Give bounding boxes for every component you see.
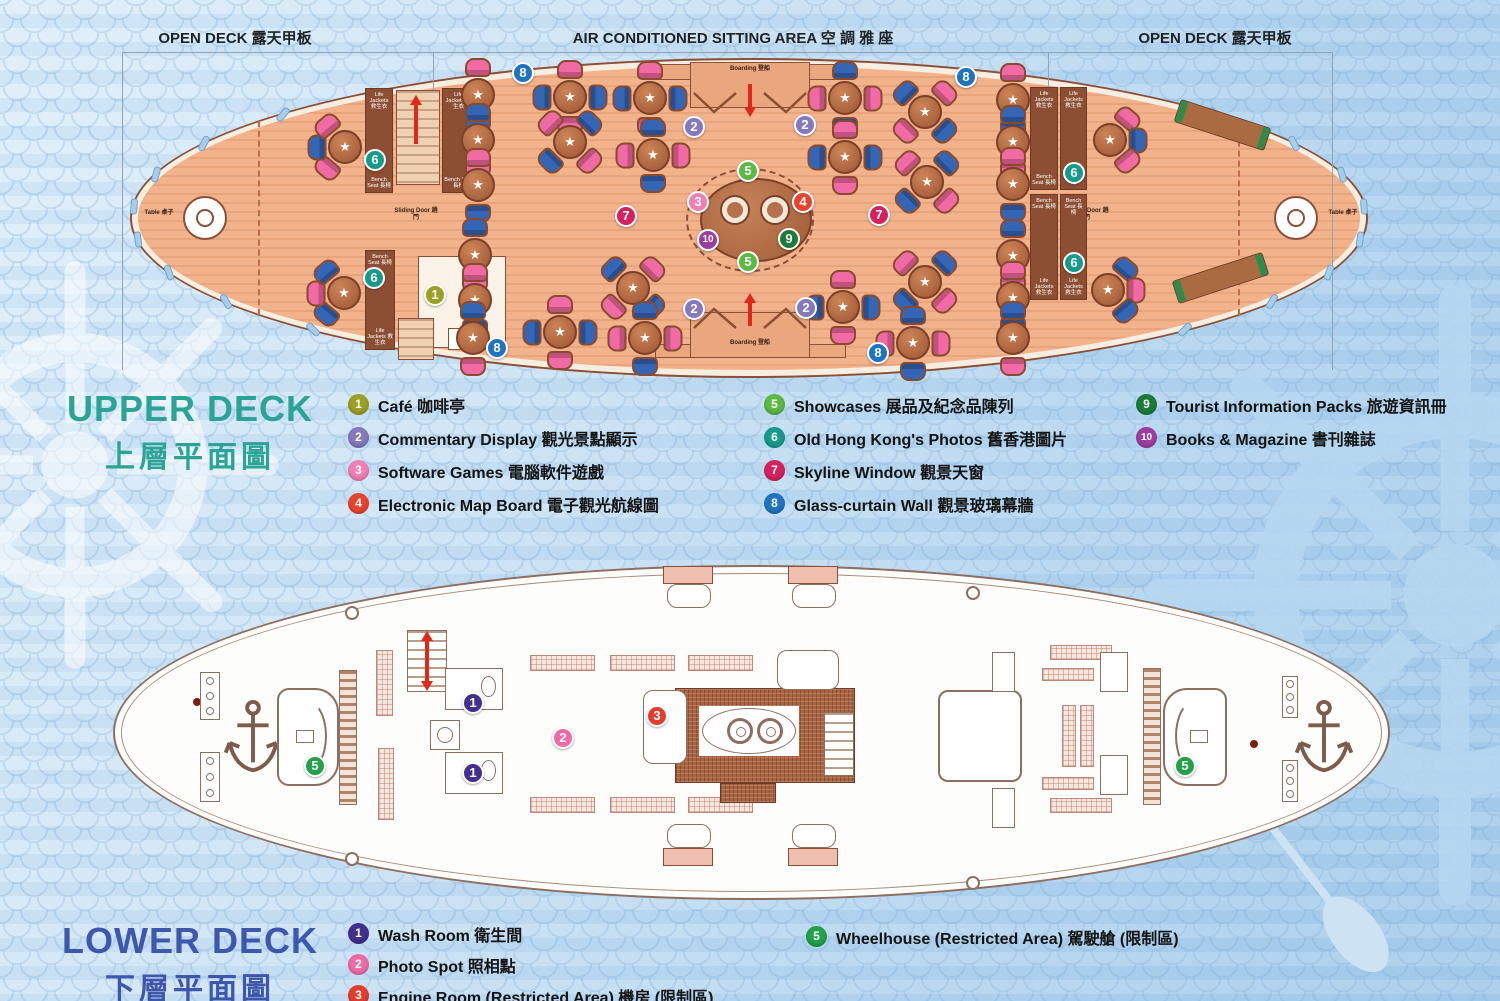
marker-upper-6: 6	[364, 149, 386, 171]
ferry-deck-plan-page: OPEN DECK 露天甲板 AIR CONDITIONED SITTING A…	[0, 0, 1500, 1001]
marker-upper-7: 7	[615, 205, 637, 227]
marker-upper-5: 5	[737, 251, 759, 273]
marker-lower-1: 1	[462, 692, 484, 714]
marker-upper-6: 6	[363, 267, 385, 289]
marker-upper-2: 2	[683, 298, 705, 320]
marker-lower-1: 1	[462, 762, 484, 784]
marker-lower-5: 5	[304, 755, 326, 777]
marker-lower-5: 5	[1174, 755, 1196, 777]
marker-upper-7: 7	[868, 204, 890, 226]
marker-upper-4: 4	[792, 191, 814, 213]
deck-markers: 8888222266661553410977112355	[0, 0, 1500, 1001]
marker-upper-2: 2	[683, 116, 705, 138]
marker-upper-8: 8	[512, 62, 534, 84]
marker-upper-2: 2	[795, 297, 817, 319]
marker-lower-2: 2	[552, 727, 574, 749]
marker-upper-8: 8	[486, 337, 508, 359]
marker-upper-5: 5	[737, 160, 759, 182]
marker-upper-2: 2	[794, 114, 816, 136]
marker-upper-6: 6	[1063, 252, 1085, 274]
marker-upper-1: 1	[424, 284, 446, 306]
marker-upper-10: 10	[697, 229, 719, 251]
marker-upper-8: 8	[955, 66, 977, 88]
marker-upper-8: 8	[867, 342, 889, 364]
marker-lower-3: 3	[646, 705, 668, 727]
marker-upper-9: 9	[778, 228, 800, 250]
marker-upper-6: 6	[1063, 162, 1085, 184]
marker-upper-3: 3	[687, 191, 709, 213]
